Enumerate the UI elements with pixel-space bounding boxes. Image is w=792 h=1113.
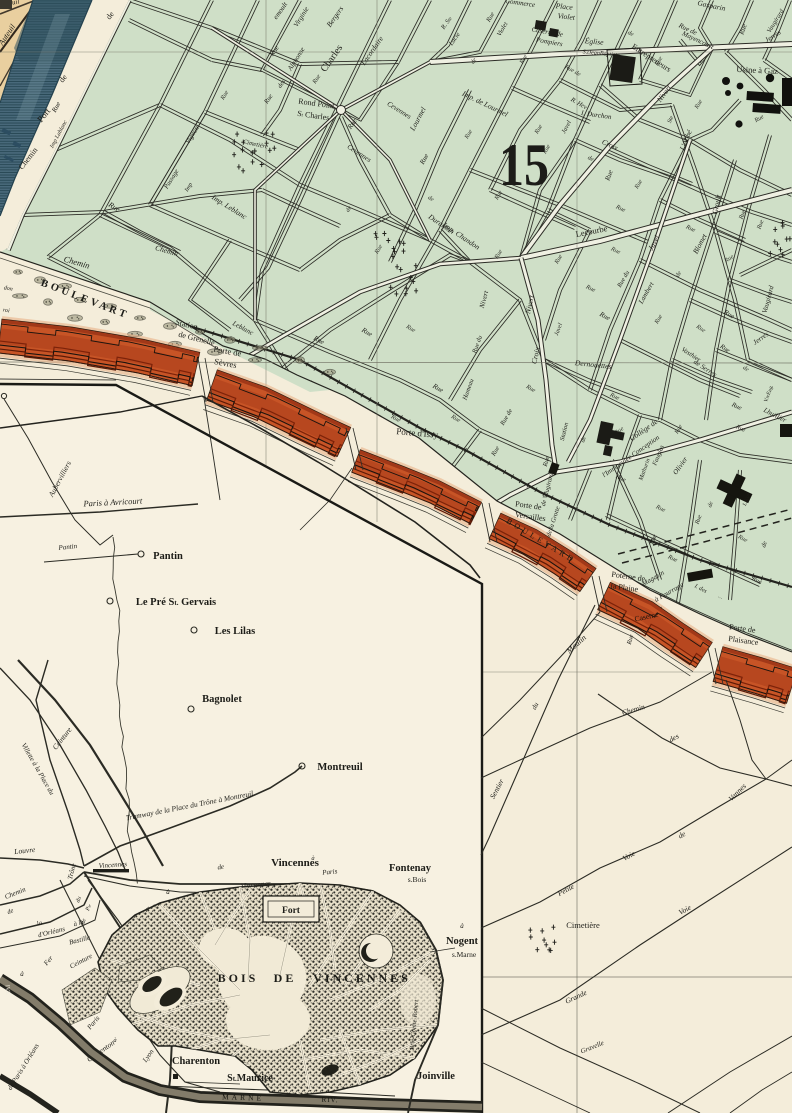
svg-text:à: à (166, 888, 170, 896)
svg-text:Vincennes: Vincennes (271, 857, 320, 869)
svg-text:s.Marne: s.Marne (452, 950, 477, 959)
svg-text:Violet: Violet (557, 11, 576, 22)
svg-text:Fontenay: Fontenay (389, 863, 432, 874)
svg-text:Cimetière: Cimetière (566, 920, 600, 930)
svg-text:Pantin: Pantin (153, 551, 183, 562)
svg-text:Charenton: Charenton (172, 1056, 220, 1067)
svg-text:Joinville: Joinville (417, 1071, 455, 1082)
svg-text:Église: Église (583, 35, 604, 47)
svg-text:roi: roi (2, 307, 10, 314)
svg-text:Fort: Fort (282, 906, 301, 916)
svg-text:St.Maurice: St.Maurice (227, 1073, 273, 1084)
svg-text:MARNE: MARNE (222, 1092, 264, 1102)
svg-text:IVE: IVE (4, 985, 11, 996)
svg-text:Montreuil: Montreuil (317, 762, 362, 773)
svg-text:DE: DE (274, 971, 297, 985)
svg-text:Le Pré St. Gervais: Le Pré St. Gervais (136, 597, 216, 608)
svg-text:à: à (460, 922, 464, 930)
svg-text:Paris: Paris (321, 867, 338, 877)
svg-text:RIV.: RIV. (321, 1096, 338, 1105)
svg-text:BOIS: BOIS (218, 971, 259, 985)
svg-text:s.Bois: s.Bois (408, 875, 427, 884)
svg-text:Nogent: Nogent (446, 936, 479, 947)
svg-text:Les Lilas: Les Lilas (215, 626, 256, 637)
svg-text:15: 15 (499, 132, 549, 198)
svg-text:à: à (20, 970, 24, 978)
svg-text:Bagnolet: Bagnolet (202, 694, 242, 705)
svg-text:VINCENNES: VINCENNES (313, 971, 411, 985)
svg-text:de: de (217, 863, 225, 872)
